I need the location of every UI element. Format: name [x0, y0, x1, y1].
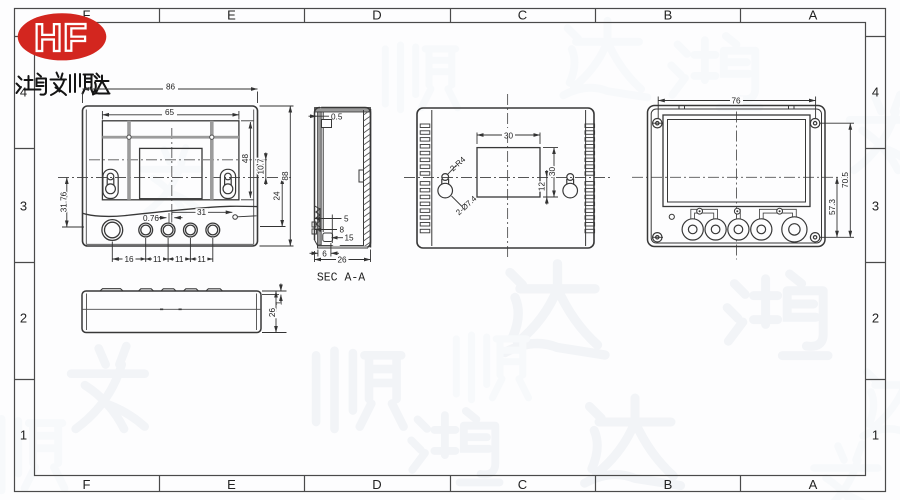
svg-text:11: 11 — [197, 255, 206, 264]
svg-text:E: E — [227, 8, 236, 23]
svg-text:2: 2 — [872, 311, 879, 326]
svg-text:26: 26 — [268, 308, 277, 318]
svg-text:A: A — [809, 477, 818, 492]
svg-text:B: B — [664, 477, 673, 492]
svg-text:E: E — [227, 477, 236, 492]
svg-text:0.5: 0.5 — [331, 113, 343, 122]
svg-text:C: C — [518, 8, 527, 23]
svg-text:31: 31 — [197, 208, 207, 217]
svg-text:11: 11 — [153, 255, 162, 264]
svg-text:88: 88 — [281, 171, 290, 181]
svg-text:0.76: 0.76 — [143, 214, 159, 223]
svg-text:D: D — [372, 477, 381, 492]
svg-text:24: 24 — [273, 191, 282, 201]
svg-text:F: F — [83, 477, 91, 492]
svg-text:5: 5 — [344, 215, 349, 224]
svg-text:76: 76 — [731, 96, 741, 105]
svg-text:11: 11 — [175, 255, 184, 264]
svg-text:57.3: 57.3 — [828, 199, 837, 215]
svg-text:B: B — [664, 8, 673, 23]
svg-text:C: C — [518, 477, 527, 492]
svg-text:A: A — [809, 8, 818, 23]
svg-text:48: 48 — [241, 154, 250, 164]
svg-text:4: 4 — [872, 85, 879, 100]
svg-text:31.76: 31.76 — [60, 191, 69, 212]
svg-text:6: 6 — [322, 250, 327, 259]
svg-text:1: 1 — [872, 428, 879, 443]
svg-text:70.5: 70.5 — [841, 172, 850, 188]
svg-text:16: 16 — [124, 255, 134, 264]
svg-text:D: D — [372, 8, 381, 23]
svg-text:1: 1 — [275, 300, 284, 305]
svg-text:30: 30 — [504, 131, 514, 140]
svg-text:3: 3 — [872, 199, 879, 214]
svg-text:10.7: 10.7 — [256, 158, 265, 174]
svg-text:1: 1 — [20, 428, 27, 443]
svg-text:SEC A-A: SEC A-A — [317, 272, 365, 285]
svg-text:15: 15 — [345, 234, 355, 243]
svg-text:HF: HF — [34, 17, 88, 60]
svg-text:65: 65 — [165, 108, 175, 117]
svg-text:26: 26 — [337, 256, 347, 265]
svg-text:2: 2 — [20, 311, 27, 326]
svg-text:12: 12 — [537, 182, 546, 192]
svg-text:30: 30 — [548, 167, 557, 177]
svg-text:86: 86 — [166, 83, 176, 92]
svg-text:3: 3 — [20, 199, 27, 214]
